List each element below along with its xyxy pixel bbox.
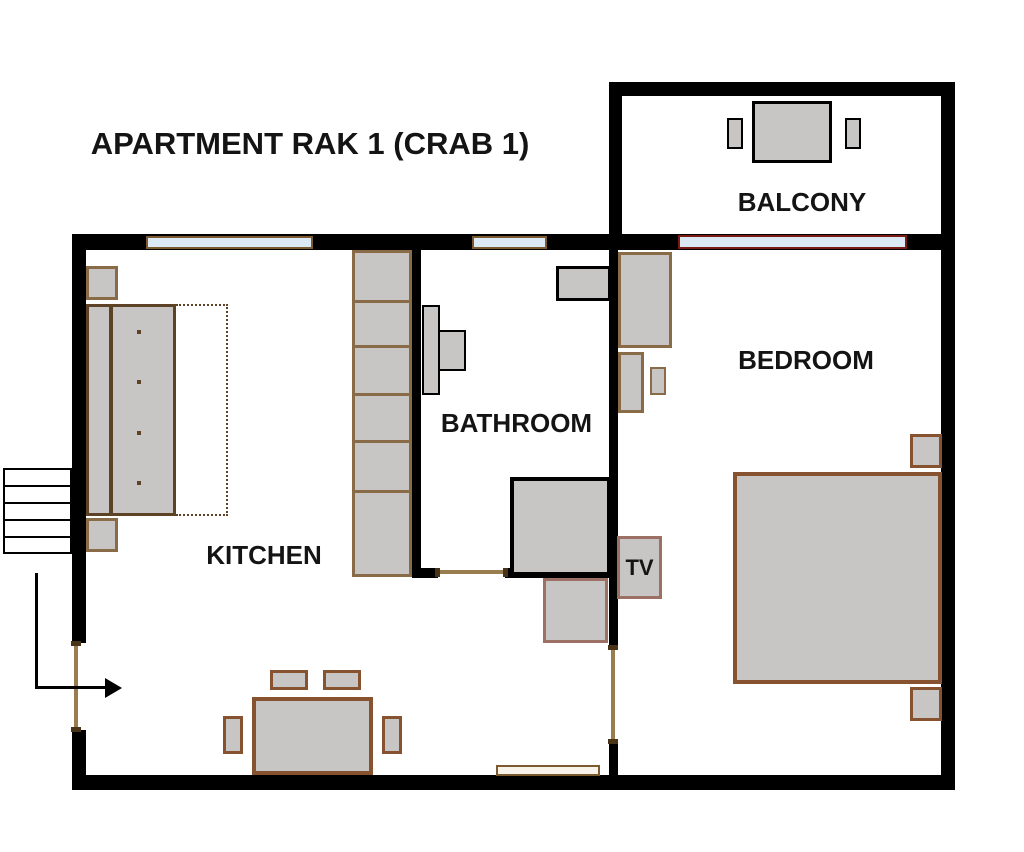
shower bbox=[510, 477, 611, 576]
counter-divider bbox=[355, 440, 409, 443]
entry-arrow-head-icon bbox=[105, 678, 122, 698]
bedroom-wardrobe bbox=[618, 252, 672, 348]
cabinet-fridge bbox=[543, 578, 608, 643]
bedroom-door-cap-bottom bbox=[608, 739, 618, 744]
counter-divider bbox=[355, 300, 409, 303]
counter-divider bbox=[355, 345, 409, 348]
floor-plan: APARTMENT RAK 1 (CRAB 1) bbox=[0, 0, 1024, 852]
bathroom-window bbox=[472, 236, 547, 249]
kitchen-window bbox=[146, 236, 313, 249]
bathroom-sink bbox=[438, 330, 466, 371]
balcony-label: BALCONY bbox=[702, 187, 902, 218]
dining-table bbox=[252, 697, 373, 775]
balcony-wall-left bbox=[609, 82, 622, 234]
bathroom-door-line bbox=[438, 570, 505, 574]
dining-chair-left bbox=[223, 716, 243, 754]
dining-chair-top-left bbox=[270, 670, 308, 690]
bedroom-door-line bbox=[611, 647, 615, 742]
bedroom-door-cap-top bbox=[608, 645, 618, 650]
stair-step-line bbox=[5, 485, 70, 487]
entrance-door-cap-bottom bbox=[71, 727, 81, 732]
wall-left-upper bbox=[72, 234, 86, 643]
sofa-button-dot bbox=[137, 330, 141, 334]
double-bed bbox=[733, 472, 942, 684]
stairs bbox=[3, 468, 72, 554]
wall-bottom bbox=[72, 775, 955, 790]
kitchen-label: KITCHEN bbox=[164, 540, 364, 571]
balcony-wall-top bbox=[609, 82, 955, 96]
stair-step-line bbox=[5, 536, 70, 538]
sofa-backrest bbox=[86, 304, 112, 516]
bathroom-label: BATHROOM bbox=[414, 408, 619, 439]
wall-bedroom-divider-lower bbox=[609, 742, 618, 775]
kitchen-shelf-top bbox=[86, 266, 118, 300]
dining-chair-top-right bbox=[323, 670, 361, 690]
wall-right bbox=[941, 82, 955, 790]
counter-divider bbox=[355, 490, 409, 493]
stair-step-line bbox=[5, 519, 70, 521]
kitchen-counter bbox=[352, 250, 412, 577]
sofa-button-dot bbox=[137, 431, 141, 435]
kitchen-shelf-bottom bbox=[86, 518, 118, 552]
tv-cabinet: TV bbox=[617, 536, 662, 599]
bathroom-door-cap-right bbox=[503, 568, 508, 577]
bedroom-small-shelf bbox=[650, 367, 666, 395]
nightstand-bottom bbox=[910, 687, 942, 721]
sofa-button-dot bbox=[137, 481, 141, 485]
balcony-table bbox=[752, 101, 832, 163]
entry-arrow-horizontal bbox=[35, 686, 107, 689]
balcony-door-window bbox=[678, 235, 907, 249]
tv-label: TV bbox=[625, 555, 653, 581]
bathroom-door-cap-left bbox=[435, 568, 440, 577]
plan-title: APARTMENT RAK 1 (CRAB 1) bbox=[84, 126, 536, 162]
washing-machine bbox=[556, 266, 611, 301]
stair-step-line bbox=[5, 502, 70, 504]
counter-divider bbox=[355, 393, 409, 396]
sofa-bed bbox=[110, 304, 176, 516]
bedroom-label: BEDROOM bbox=[706, 345, 906, 376]
dining-chair-right bbox=[382, 716, 402, 754]
bottom-wall-radiator bbox=[496, 765, 600, 776]
balcony-chair-right bbox=[845, 118, 861, 149]
entry-arrow-vertical bbox=[35, 573, 38, 689]
nightstand-top bbox=[910, 434, 942, 468]
bedroom-dresser bbox=[618, 352, 644, 413]
entrance-door-cap-top bbox=[71, 641, 81, 646]
balcony-chair-left bbox=[727, 118, 743, 149]
sofa-pullout-extension-outline bbox=[176, 304, 228, 516]
sofa-button-dot bbox=[137, 380, 141, 384]
